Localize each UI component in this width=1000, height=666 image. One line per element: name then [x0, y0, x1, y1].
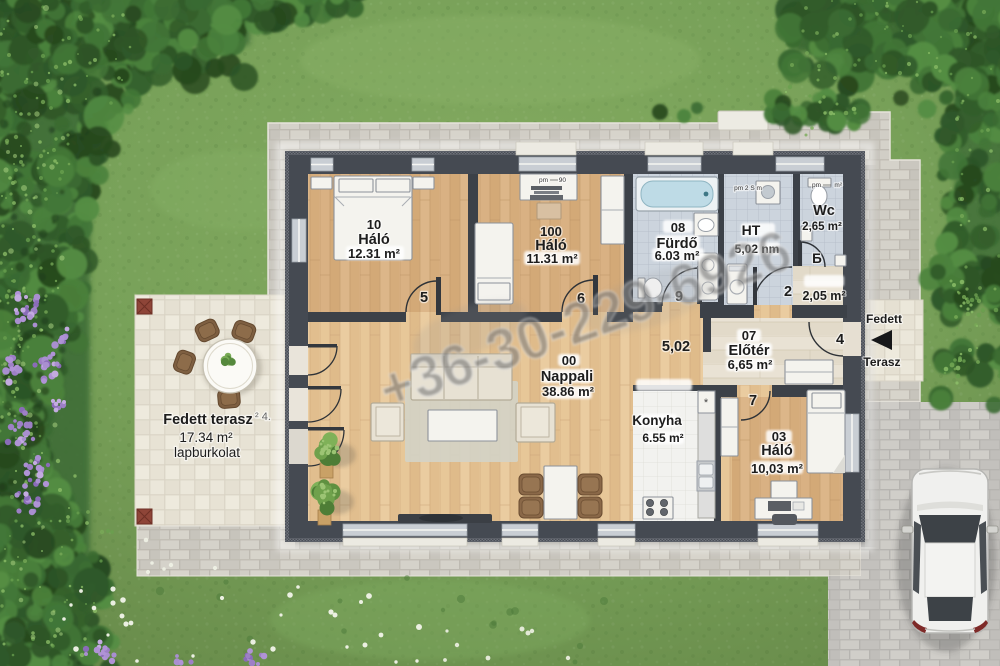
- svg-text:2,05 m²: 2,05 m²: [802, 289, 845, 303]
- svg-text:pm: pm: [539, 177, 548, 184]
- svg-text:6.55 m²: 6.55 m²: [642, 431, 683, 445]
- svg-text:Fedett: Fedett: [866, 312, 902, 326]
- svg-text:Terasz: Terasz: [863, 355, 900, 369]
- svg-text:m²: m²: [834, 182, 842, 189]
- svg-text:2,65 m²: 2,65 m²: [802, 221, 842, 233]
- svg-text:07: 07: [742, 328, 756, 343]
- svg-text:Б: Б: [812, 251, 822, 266]
- svg-text:17.34 m²: 17.34 m²: [179, 430, 233, 445]
- svg-text:5: 5: [420, 290, 428, 306]
- svg-text:Nappali: Nappali: [541, 369, 593, 385]
- svg-text:Wc: Wc: [813, 203, 835, 219]
- svg-text:5,02: 5,02: [662, 339, 690, 355]
- svg-text:² 4.: ² 4.: [255, 411, 271, 423]
- svg-text:pm: pm: [812, 182, 821, 189]
- svg-text:2: 2: [784, 284, 792, 300]
- svg-text:6,65 m²: 6,65 m²: [728, 357, 773, 372]
- svg-text:90: 90: [559, 177, 567, 184]
- svg-text:Háló: Háló: [761, 443, 793, 459]
- svg-text:10: 10: [367, 217, 381, 232]
- svg-text:7: 7: [749, 393, 757, 409]
- svg-text:03: 03: [772, 429, 786, 444]
- svg-text:Konyha: Konyha: [632, 413, 682, 428]
- svg-text:08: 08: [671, 220, 685, 235]
- svg-text:Fedett terasz: Fedett terasz: [163, 412, 252, 428]
- svg-text:*: *: [704, 397, 709, 409]
- svg-text:4: 4: [836, 332, 844, 348]
- svg-text:12.31 m²: 12.31 m²: [348, 246, 401, 261]
- svg-text:38.86 m²: 38.86 m²: [542, 384, 595, 399]
- svg-text:10,03 m²: 10,03 m²: [751, 461, 804, 476]
- svg-text:100: 100: [540, 224, 562, 239]
- svg-text:lapburkolat: lapburkolat: [174, 445, 240, 460]
- svg-text:pm 2 S m: pm 2 S m: [734, 185, 762, 192]
- svg-text:11.31 m²: 11.31 m²: [526, 251, 578, 266]
